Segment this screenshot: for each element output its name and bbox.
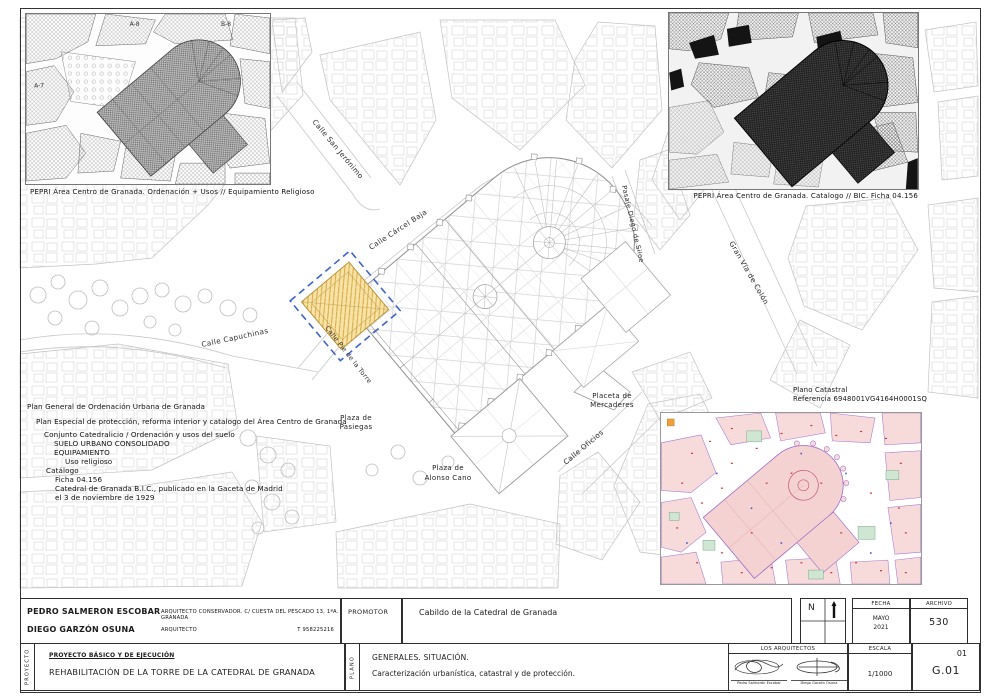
fecha-cell: FECHA MAYO 2021: [852, 598, 910, 644]
proyecto-side-cell: PROYECTO: [20, 643, 35, 691]
promotor-label: PROMOTOR: [348, 608, 388, 616]
architect2-name: DIEGO GARZÓN OSUNA: [27, 625, 135, 634]
signature2-icon: [791, 656, 847, 678]
promotor-label-cell: PROMOTOR: [341, 598, 402, 644]
fecha-label: FECHA: [853, 599, 909, 609]
archivo-cell: ARCHIVO 530: [910, 598, 968, 644]
architect1-name: PEDRO SALMERON ESCOBAR: [27, 607, 160, 616]
sheet-number-cell: 01 G.01: [912, 643, 980, 691]
signature1-name: Pedro Salmerón Escobar: [731, 680, 787, 685]
sheet-frame: [20, 8, 981, 693]
sheet-code: G.01: [913, 664, 979, 677]
architect2-role: ARQUITECTO: [161, 627, 197, 633]
fecha-month: MAYO: [853, 615, 909, 622]
proyecto-cell: PROYECTO BÁSICO Y DE EJECUCIÓN REHABILIT…: [34, 643, 345, 691]
proyecto-side-label: PROYECTO: [21, 644, 34, 690]
architect1-role: ARQUITECTO CONSERVADOR. C/ CUESTA DEL PE…: [161, 609, 340, 621]
escala-value: 1/1000: [849, 670, 911, 678]
arquitectos-cell: LOS ARQUITECTOS Pedro Salmerón Escobar D…: [728, 643, 848, 691]
archivo-value: 530: [911, 617, 967, 628]
signature1-icon: [731, 656, 787, 678]
arquitectos-label: LOS ARQUITECTOS: [729, 644, 847, 654]
signature-2: Diego Garzón Osuna: [791, 656, 847, 685]
plano-side-cell: PLANO: [345, 643, 360, 691]
plano-side-label: PLANO: [346, 644, 359, 690]
proyecto-title: REHABILITACIÓN DE LA TORRE DE LA CATEDRA…: [49, 667, 315, 677]
north-arrow-icon: [801, 599, 845, 643]
fecha-year: 2021: [853, 624, 909, 631]
escala-label: ESCALA: [849, 644, 911, 654]
north-cell: N: [800, 598, 846, 644]
promotor-value-cell: Cabildo de la Catedral de Granada: [402, 598, 792, 644]
signature-1: Pedro Salmerón Escobar: [731, 656, 787, 685]
architect-phone: T 958225216: [297, 627, 334, 633]
archivo-label: ARCHIVO: [911, 599, 967, 609]
drawing-sheet: Calle San Jerónimo Calle Cárcel Baja Cal…: [0, 0, 1000, 700]
plano-subtitle: Caracterización urbanística, catastral y…: [372, 669, 575, 678]
signature2-name: Diego Garzón Osuna: [791, 680, 847, 685]
architects-cell: PEDRO SALMERON ESCOBAR DIEGO GARZÓN OSUN…: [20, 598, 341, 644]
promotor-value: Cabildo de la Catedral de Granada: [419, 608, 557, 617]
sheet-number: 01: [957, 649, 967, 658]
proyecto-type: PROYECTO BÁSICO Y DE EJECUCIÓN: [49, 652, 174, 659]
escala-cell: ESCALA 1/1000: [848, 643, 912, 691]
plano-title: GENERALES. SITUACIÓN.: [372, 653, 469, 662]
plano-cell: GENERALES. SITUACIÓN. Caracterización ur…: [359, 643, 729, 691]
